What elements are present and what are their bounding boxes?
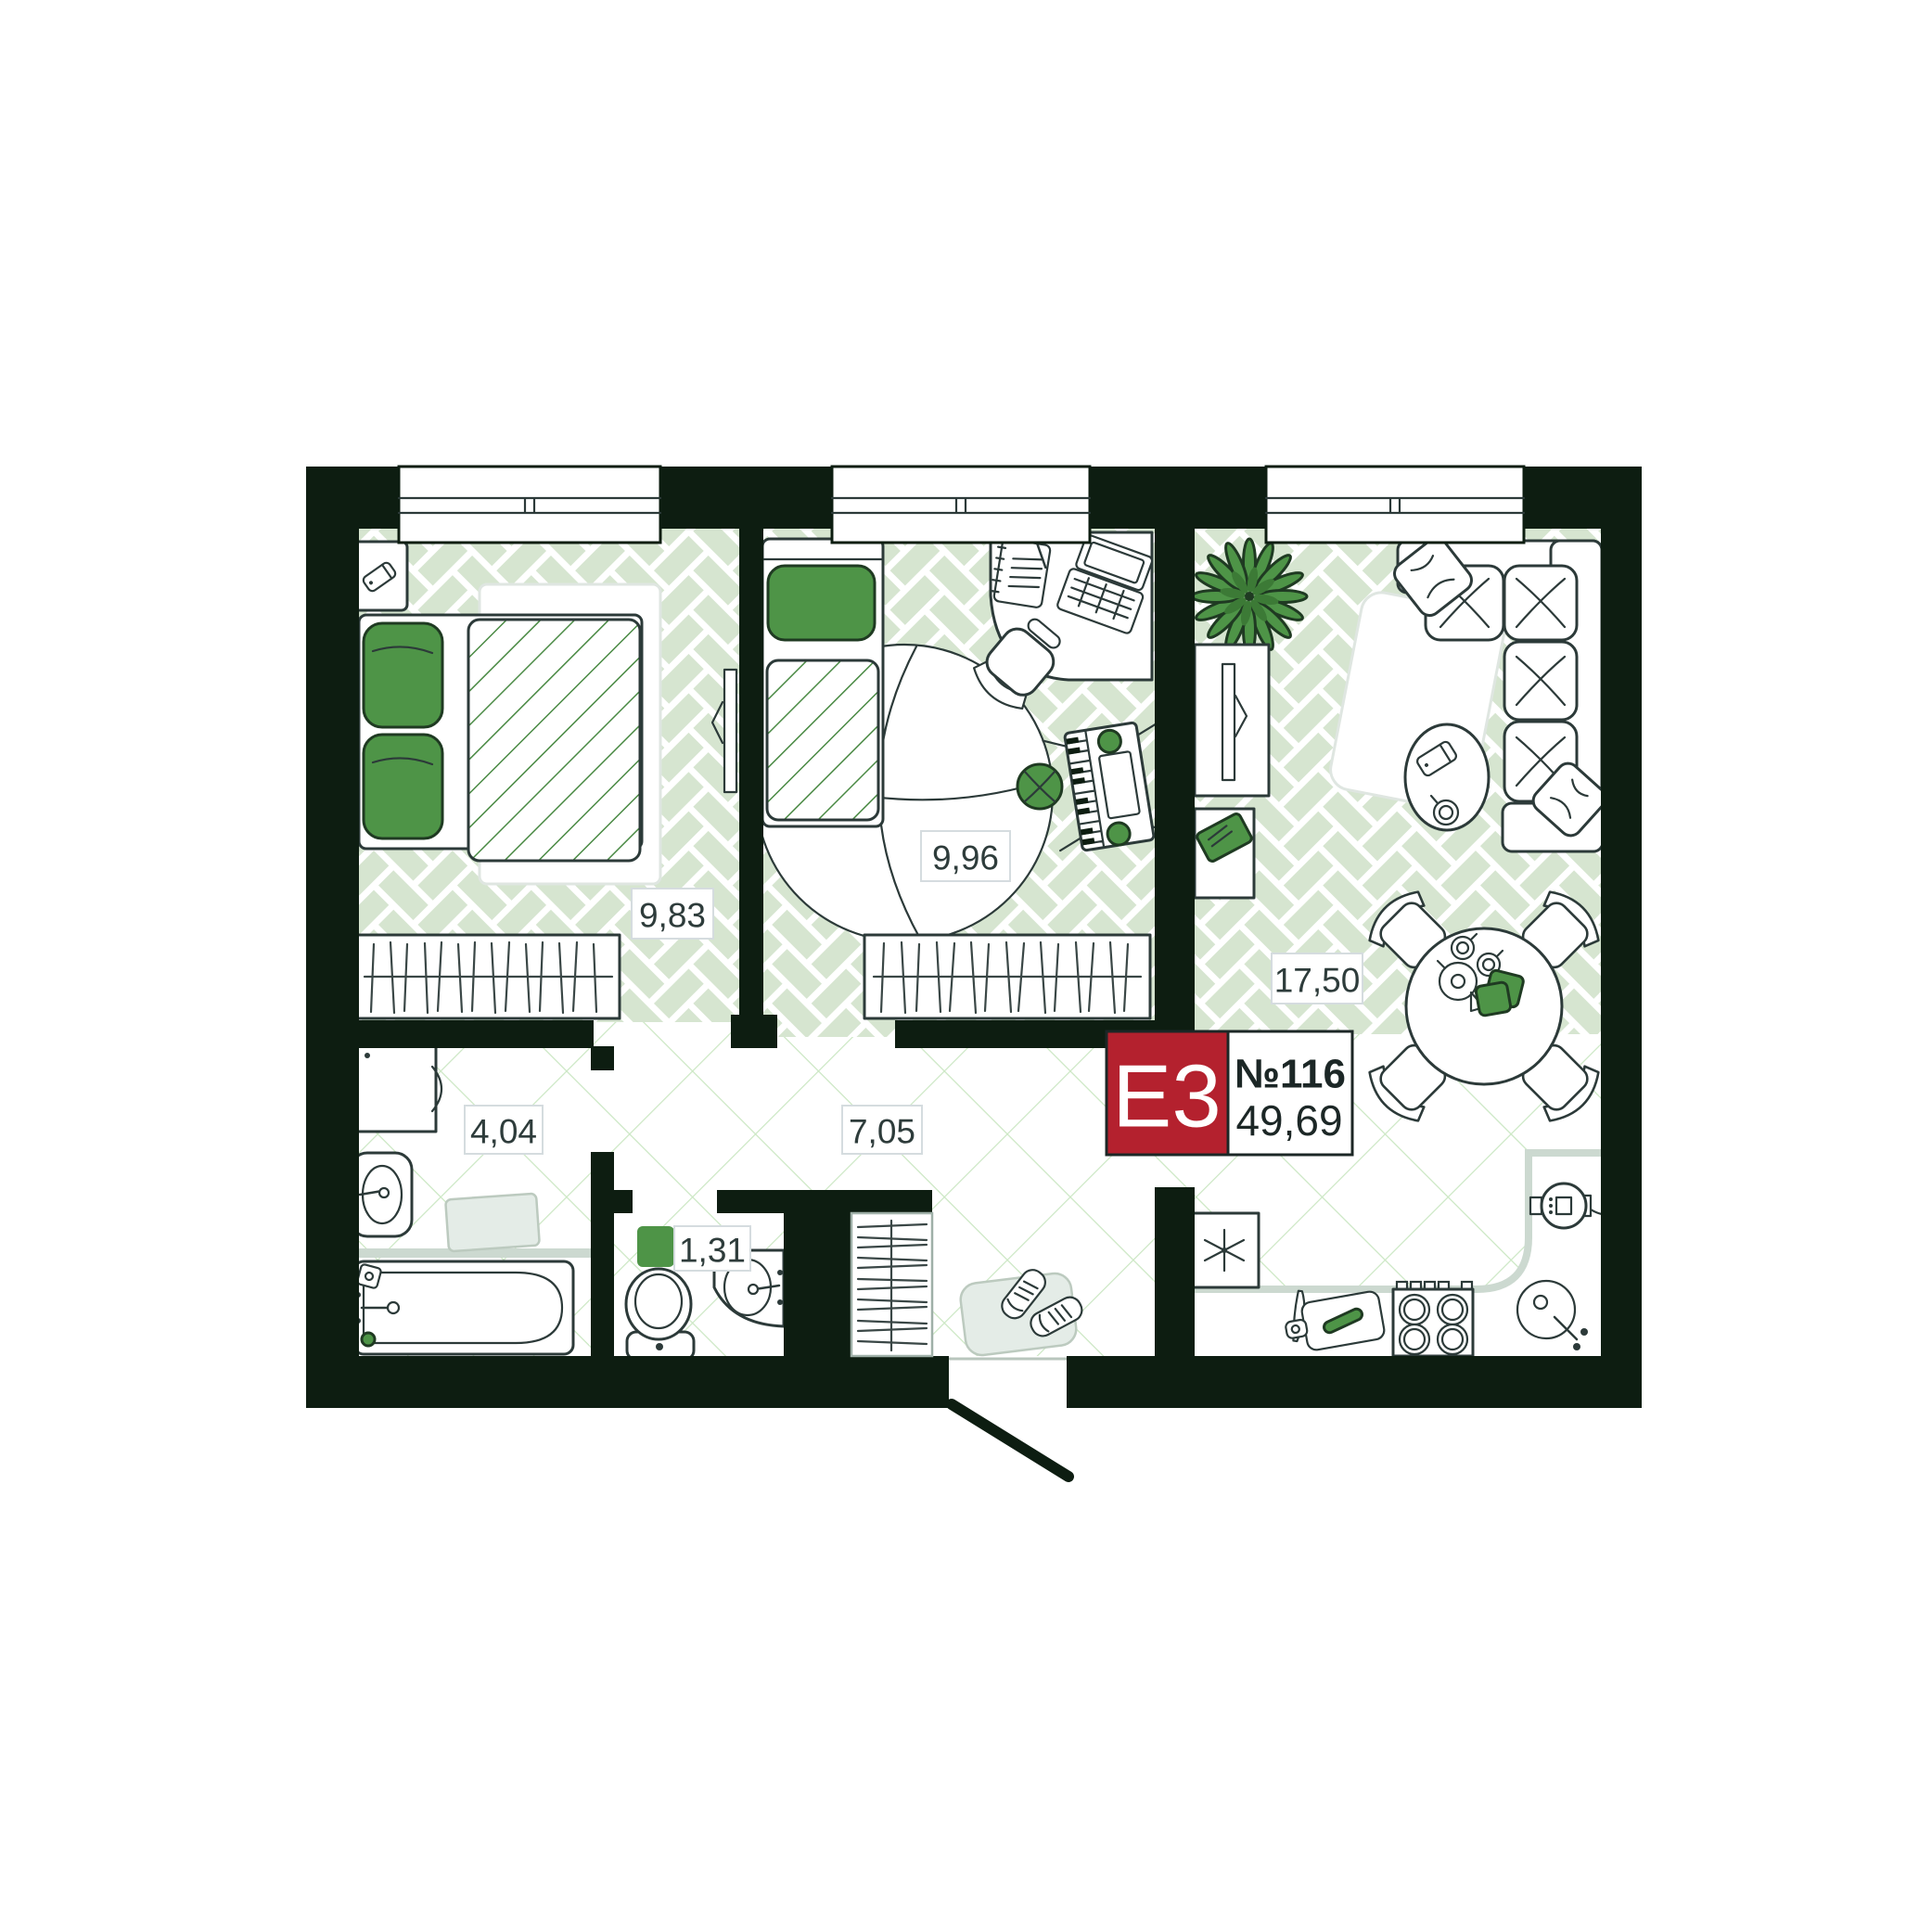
single-bed xyxy=(762,539,883,826)
area-value: 9,83 xyxy=(639,897,706,935)
drain xyxy=(362,1333,375,1346)
pouf-icon xyxy=(1017,764,1062,809)
wardrobe xyxy=(864,935,1150,1018)
fridge-icon xyxy=(1190,1213,1259,1287)
nightstand xyxy=(352,542,407,610)
area-value: 1,31 xyxy=(679,1232,746,1270)
unit-number: №116 xyxy=(1235,1052,1346,1097)
unit-type: E3 xyxy=(1112,1047,1221,1146)
area-label-living-room: 17,50 xyxy=(1272,953,1363,1004)
wc-green-marker xyxy=(637,1226,674,1267)
window xyxy=(832,467,1090,543)
wardrobe xyxy=(355,935,620,1018)
double-bed xyxy=(347,612,642,861)
area-value: 9,96 xyxy=(932,839,999,877)
shelf-cabinet xyxy=(1195,809,1254,898)
coffee-table xyxy=(1405,724,1489,830)
area-value: 7,05 xyxy=(849,1113,915,1151)
unit-badge: E3 №116 49,69 xyxy=(1107,1031,1352,1155)
area-label-bedroom-2: 9,96 xyxy=(921,831,1010,881)
entrance-door xyxy=(949,1359,1068,1477)
windows xyxy=(399,467,1524,543)
plant-icon xyxy=(1192,539,1307,654)
pillow xyxy=(768,566,875,640)
closet xyxy=(851,1213,932,1356)
blanket xyxy=(767,660,878,820)
window xyxy=(1266,467,1524,543)
blanket xyxy=(468,620,640,861)
tv-console xyxy=(1195,645,1269,796)
floor-plan: 9,83 9,96 17,50 4,04 7,05 1,31 E3 №116 4… xyxy=(0,0,1932,1932)
unit-total-area: 49,69 xyxy=(1235,1096,1342,1145)
area-label-bathroom: 4,04 xyxy=(465,1106,543,1154)
washing-machine-icon xyxy=(357,1046,441,1132)
napkin-icon xyxy=(1475,981,1511,1016)
bath-mat xyxy=(445,1194,540,1252)
toilet-icon xyxy=(626,1269,694,1360)
area-label-wc: 1,31 xyxy=(637,1226,750,1271)
area-label-hallway: 7,05 xyxy=(842,1106,922,1154)
stove-icon xyxy=(1393,1282,1473,1356)
bathroom-sink-icon xyxy=(351,1153,412,1236)
pillow xyxy=(364,735,442,838)
shampoo-icon xyxy=(357,1264,382,1289)
window xyxy=(399,467,660,543)
bathtub xyxy=(354,1261,573,1354)
area-label-bedroom-1: 9,83 xyxy=(632,889,713,939)
notebook-icon xyxy=(990,536,1051,608)
area-value: 4,04 xyxy=(470,1113,537,1151)
pillow xyxy=(364,623,442,727)
floor-plan-svg: 9,83 9,96 17,50 4,04 7,05 1,31 E3 №116 4… xyxy=(0,0,1932,1932)
area-value: 17,50 xyxy=(1274,962,1361,1000)
tv-icon xyxy=(1222,664,1235,780)
